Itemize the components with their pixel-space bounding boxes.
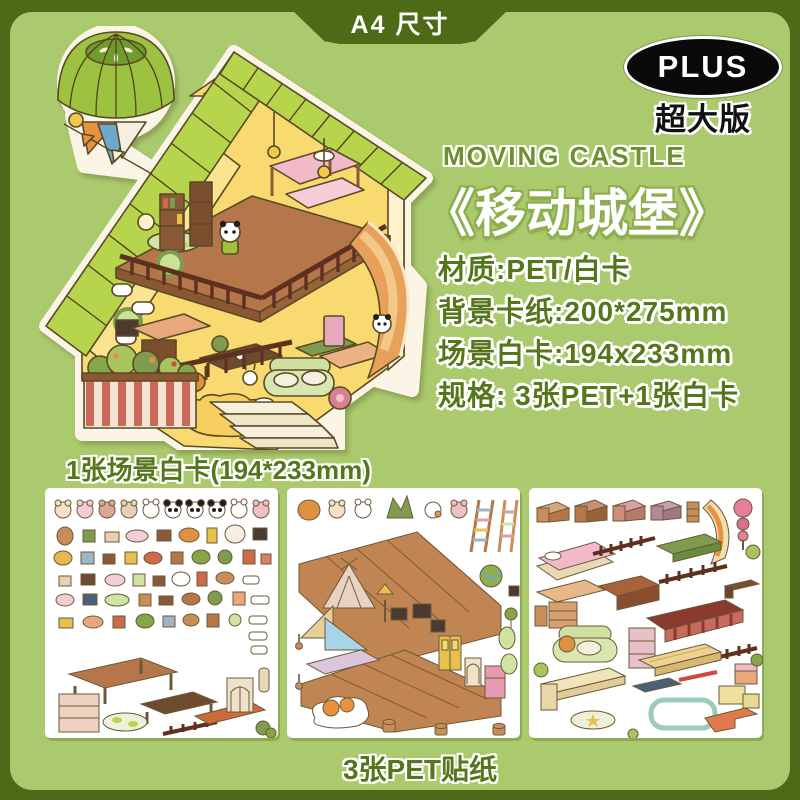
cabinet-row [537,500,699,522]
slide-sticker [703,500,729,564]
bed-sticker [537,542,615,580]
product-title-zh: 《移动城堡》 [424,172,794,246]
plus-badge: PLUS [624,36,782,98]
product-image: A4 尺寸 PLUS 超大版 [0,0,800,800]
sticker-sheet-1 [45,488,278,738]
mini-sticker-grid [54,525,271,654]
ladder-stickers [471,500,517,552]
house-illustration [24,26,440,450]
sticker-sheet-3 [529,488,762,738]
spec-contents: 规格: 3张PET+1张白卡 [438,375,739,417]
scene-card-caption: 1张场景白卡(194*233mm) [66,450,371,487]
animal-sticker-row [55,499,269,518]
plus-badge-label: PLUS [658,49,749,85]
pet-stickers-caption: 3张PET贴纸 [280,748,560,788]
spec-list: 材质:PET/白卡 背景卡纸:200*275mm 场景白卡:194x233mm … [438,249,739,417]
spec-background-card: 背景卡纸:200*275mm [438,291,739,333]
animal-sticker-row-2 [298,496,467,520]
sticker-sheet-2 [287,488,520,738]
spec-material: 材质:PET/白卡 [438,249,739,291]
large-sticker-items [59,658,276,738]
plus-badge-subtitle: 超大版 [624,94,782,139]
spec-scene-card: 场景白卡:194x233mm [438,333,739,375]
coatrack-sticker [734,499,752,550]
product-title-en: MOVING CASTLE [443,141,686,172]
